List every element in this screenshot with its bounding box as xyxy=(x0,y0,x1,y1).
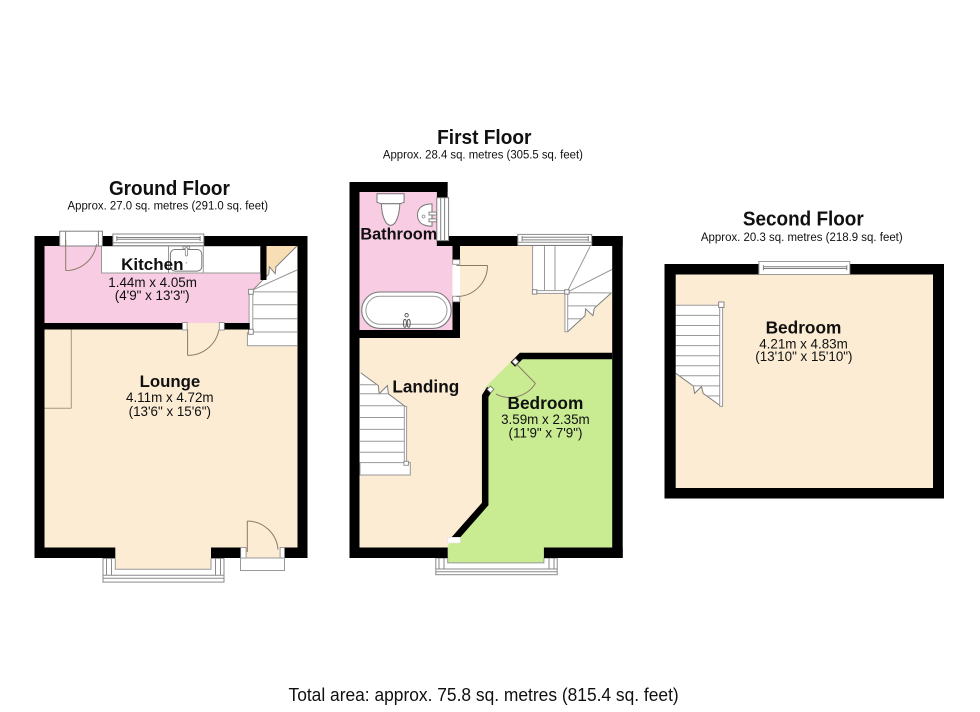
svg-text:Approx. 20.3 sq. metres (218.9: Approx. 20.3 sq. metres (218.9 sq. feet) xyxy=(701,230,903,244)
svg-text:Approx. 27.0 sq. metres (291.0: Approx. 27.0 sq. metres (291.0 sq. feet) xyxy=(68,199,269,213)
svg-text:Bathroom: Bathroom xyxy=(360,226,437,244)
svg-text:Approx. 28.4 sq. metres (305.5: Approx. 28.4 sq. metres (305.5 sq. feet) xyxy=(383,148,583,162)
svg-text:Bedroom: Bedroom xyxy=(766,318,842,338)
svg-text:Kitchen: Kitchen xyxy=(121,255,183,274)
svg-text:Total area: approx. 75.8 sq. m: Total area: approx. 75.8 sq. metres (815… xyxy=(289,685,679,705)
svg-text:Second Floor: Second Floor xyxy=(743,209,864,231)
svg-text:(13'10" x 15'10"): (13'10" x 15'10") xyxy=(755,349,852,364)
svg-text:Bedroom: Bedroom xyxy=(507,393,583,413)
svg-text:Ground Floor: Ground Floor xyxy=(109,178,230,200)
svg-text:4.11m x 4.72m: 4.11m x 4.72m xyxy=(126,390,214,405)
svg-text:Landing: Landing xyxy=(392,377,459,397)
svg-text:(4'9" x 13'3"): (4'9" x 13'3") xyxy=(115,288,190,303)
svg-text:First Floor: First Floor xyxy=(437,127,532,149)
svg-text:(13'6" x 15'6"): (13'6" x 15'6") xyxy=(129,404,211,419)
svg-text:(11'9" x 7'9"): (11'9" x 7'9") xyxy=(509,425,583,440)
svg-text:Lounge: Lounge xyxy=(140,372,201,391)
